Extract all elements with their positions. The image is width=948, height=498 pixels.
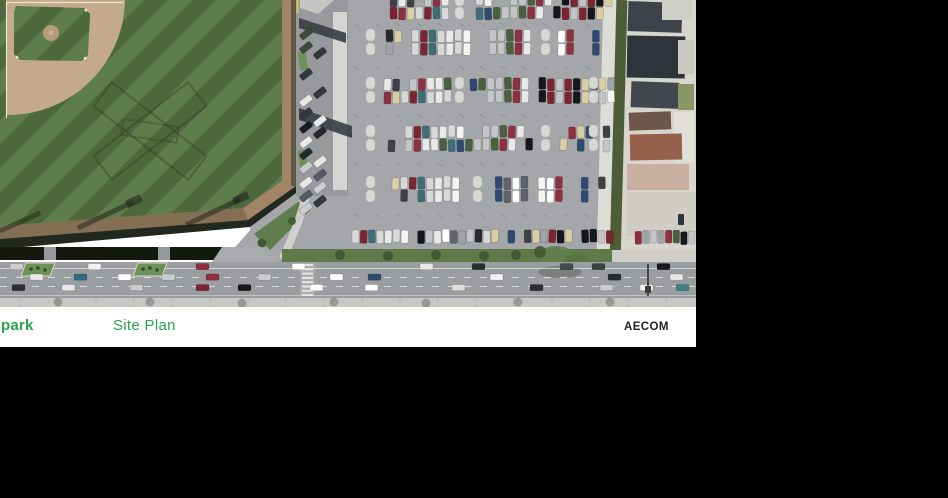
black-canvas: park Site Plan AECOM	[0, 0, 948, 498]
slide-title: Site Plan	[113, 317, 176, 334]
site-plan-aerial-rendering	[0, 0, 696, 307]
site-plan-slide: park Site Plan AECOM	[0, 0, 696, 347]
aecom-logo: AECOM	[624, 321, 669, 333]
caption-bar: park Site Plan AECOM	[0, 307, 696, 347]
project-title: park	[1, 317, 34, 334]
